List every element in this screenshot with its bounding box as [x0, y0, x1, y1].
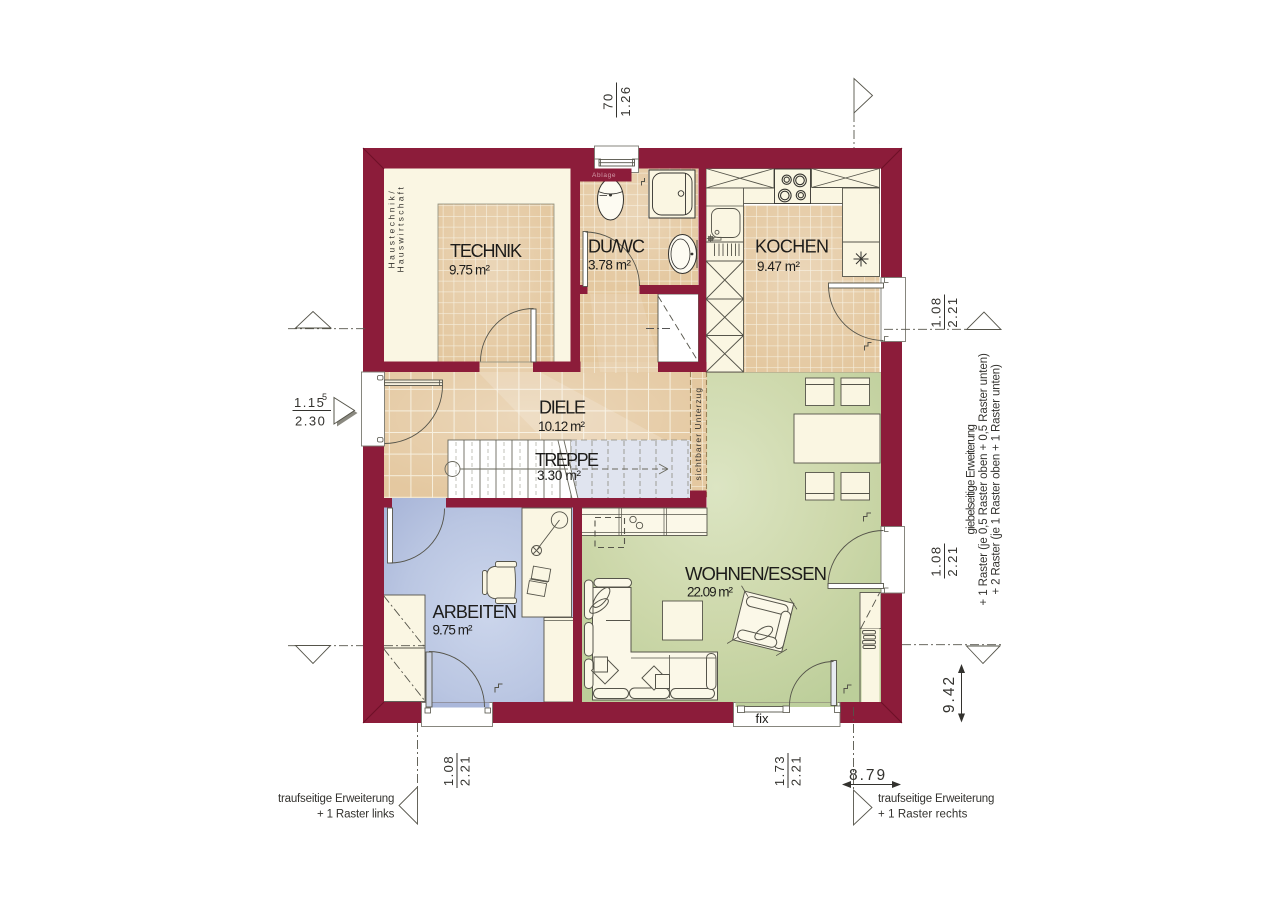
- svg-text:DIELE: DIELE: [539, 398, 587, 418]
- svg-text:1.08: 1.08: [929, 296, 944, 327]
- svg-text:WOHNEN/ESSEN: WOHNEN/ESSEN: [685, 563, 828, 584]
- svg-text:giebelseitige Erweiterung: giebelseitige Erweiterung: [966, 424, 978, 535]
- svg-text:traufseitige Erweiterung: traufseitige Erweiterung: [278, 793, 395, 805]
- svg-text:1.26: 1.26: [618, 85, 633, 116]
- svg-text:1.15: 1.15: [294, 395, 325, 410]
- svg-text:10.12 m²: 10.12 m²: [538, 419, 586, 434]
- svg-text:22.09 m²: 22.09 m²: [687, 585, 734, 600]
- svg-text:1.73: 1.73: [772, 755, 787, 786]
- svg-text:2.30: 2.30: [295, 414, 326, 429]
- svg-text:Hauswirtschaft: Hauswirtschaft: [396, 187, 406, 273]
- svg-text:9.75 m²: 9.75 m²: [449, 263, 491, 278]
- svg-text:9.75 m²: 9.75 m²: [433, 623, 474, 638]
- svg-text:9.42: 9.42: [941, 675, 958, 713]
- svg-text:3.78 m²: 3.78 m²: [588, 258, 632, 273]
- svg-text:sichtbarer Unterzug: sichtbarer Unterzug: [693, 388, 703, 481]
- svg-text:5: 5: [322, 392, 327, 402]
- svg-text:ARBEITEN: ARBEITEN: [433, 602, 519, 622]
- svg-text:8.79: 8.79: [849, 767, 887, 784]
- svg-text:+ 1 Raster rechts: + 1 Raster rechts: [878, 809, 968, 821]
- svg-text:TECHNIK: TECHNIK: [450, 241, 523, 261]
- svg-text:1.08: 1.08: [441, 755, 456, 786]
- svg-text:DU/WC: DU/WC: [588, 237, 646, 257]
- svg-text:traufseitige Erweiterung: traufseitige Erweiterung: [878, 793, 995, 805]
- svg-text:2.21: 2.21: [945, 296, 960, 327]
- svg-text:fix: fix: [756, 711, 770, 726]
- svg-text:9.47 m²: 9.47 m²: [757, 259, 801, 274]
- svg-text:2.21: 2.21: [789, 755, 804, 786]
- svg-text:2.21: 2.21: [945, 545, 960, 576]
- svg-text:+ 1 Raster (je 0,5 Raster oben: + 1 Raster (je 0,5 Raster oben + 0,5 Ras…: [978, 353, 990, 606]
- svg-text:TREPPE: TREPPE: [535, 450, 600, 470]
- svg-text:Ablage: Ablage: [592, 172, 616, 179]
- svg-text:+ 1 Raster links: + 1 Raster links: [317, 809, 395, 821]
- svg-text:3.30 m²: 3.30 m²: [537, 468, 582, 483]
- svg-text:1.08: 1.08: [929, 545, 944, 576]
- svg-text:70: 70: [601, 92, 616, 109]
- svg-text:+ 2 Raster (je 1 Raster oben +: + 2 Raster (je 1 Raster oben + 1 Raster …: [991, 364, 1003, 595]
- svg-text:2.21: 2.21: [458, 755, 473, 786]
- svg-text:KOCHEN: KOCHEN: [755, 237, 830, 257]
